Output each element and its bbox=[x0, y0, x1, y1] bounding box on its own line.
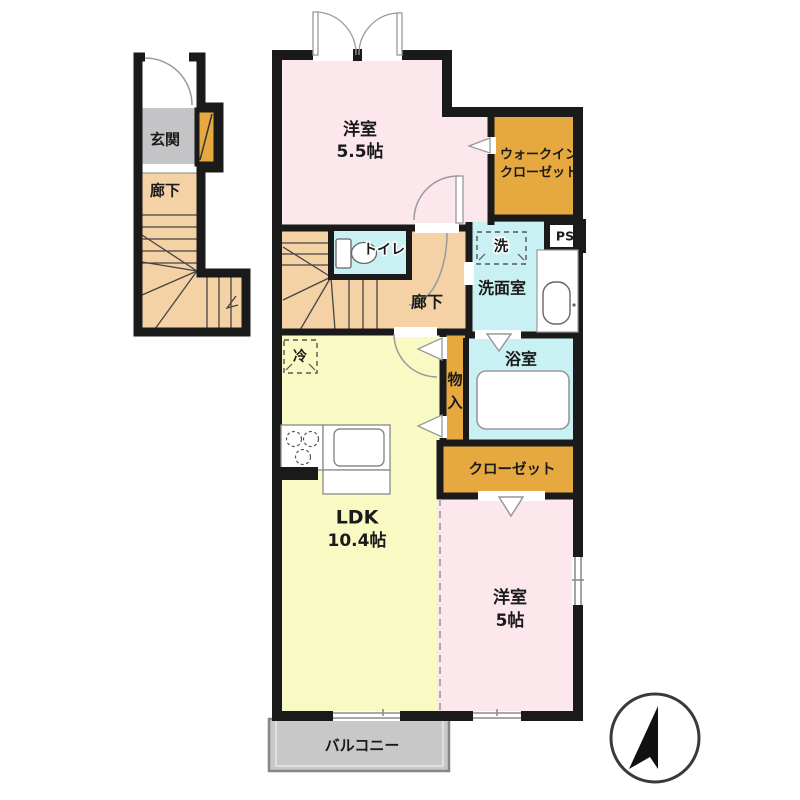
bathroom-label: 浴室 bbox=[505, 350, 537, 369]
westroom5-name: 洋室 bbox=[493, 587, 527, 608]
westroom55-door-leaf bbox=[456, 176, 463, 223]
wic-label-line2: クローゼット bbox=[500, 165, 578, 181]
entrance-door-gap bbox=[145, 51, 189, 62]
kitchen-lower-counter bbox=[323, 470, 390, 494]
kitchen-wall-stub bbox=[273, 467, 318, 480]
main-unit: バルコニー bbox=[269, 12, 584, 771]
double-door-left-arc bbox=[318, 12, 356, 55]
monoire-label-char2: 入 bbox=[447, 394, 462, 412]
vanity-faucet-dot bbox=[572, 303, 575, 306]
floor-plan-page: 玄関 廊下 バルコニー bbox=[0, 0, 800, 800]
genkan-label: 玄関 bbox=[150, 131, 180, 149]
double-door-center-stub bbox=[353, 49, 362, 61]
refrigerator-label: 冷 bbox=[293, 348, 307, 365]
balcony: バルコニー bbox=[269, 719, 449, 771]
annex-corridor-label: 廊下 bbox=[150, 182, 180, 200]
westroom55-name: 洋室 bbox=[343, 119, 377, 140]
compass bbox=[611, 694, 699, 782]
kitchen-sink bbox=[334, 429, 384, 466]
westroom55-door-gap bbox=[415, 223, 459, 233]
ldk-door-gap bbox=[394, 327, 437, 337]
bathtub bbox=[477, 371, 569, 429]
westroom55-size: 5.5帖 bbox=[336, 141, 383, 162]
double-door-right-arc bbox=[359, 13, 397, 55]
laundry-label: 洗 bbox=[494, 237, 509, 255]
washroom-label: 洗面室 bbox=[478, 279, 526, 298]
closet-label: クローゼット bbox=[469, 460, 556, 478]
double-door-left-leaf bbox=[313, 12, 318, 55]
vanity-basin bbox=[543, 282, 570, 324]
toilet-tank bbox=[336, 239, 351, 268]
ps-label: PS bbox=[556, 229, 574, 244]
stove-unit bbox=[281, 425, 323, 470]
annex-entrance-stairs: 玄関 廊下 bbox=[138, 51, 246, 332]
westroom5-side-window-gap bbox=[572, 557, 584, 605]
balcony-label: バルコニー bbox=[325, 737, 400, 755]
floor-plan: 玄関 廊下 バルコニー bbox=[0, 0, 800, 800]
monoire-label-char1: 物 bbox=[447, 371, 462, 389]
wic-label-line1: ウォークイン bbox=[500, 148, 578, 163]
ldk-size: 10.4帖 bbox=[328, 530, 387, 551]
washroom-door-gap bbox=[464, 262, 474, 285]
corridor-label: 廊下 bbox=[411, 293, 443, 312]
toilet-label: トイレ bbox=[363, 242, 405, 258]
westroom5-size: 5帖 bbox=[496, 610, 525, 631]
double-door-right-leaf bbox=[397, 13, 402, 55]
ldk-name: LDK bbox=[336, 507, 380, 529]
